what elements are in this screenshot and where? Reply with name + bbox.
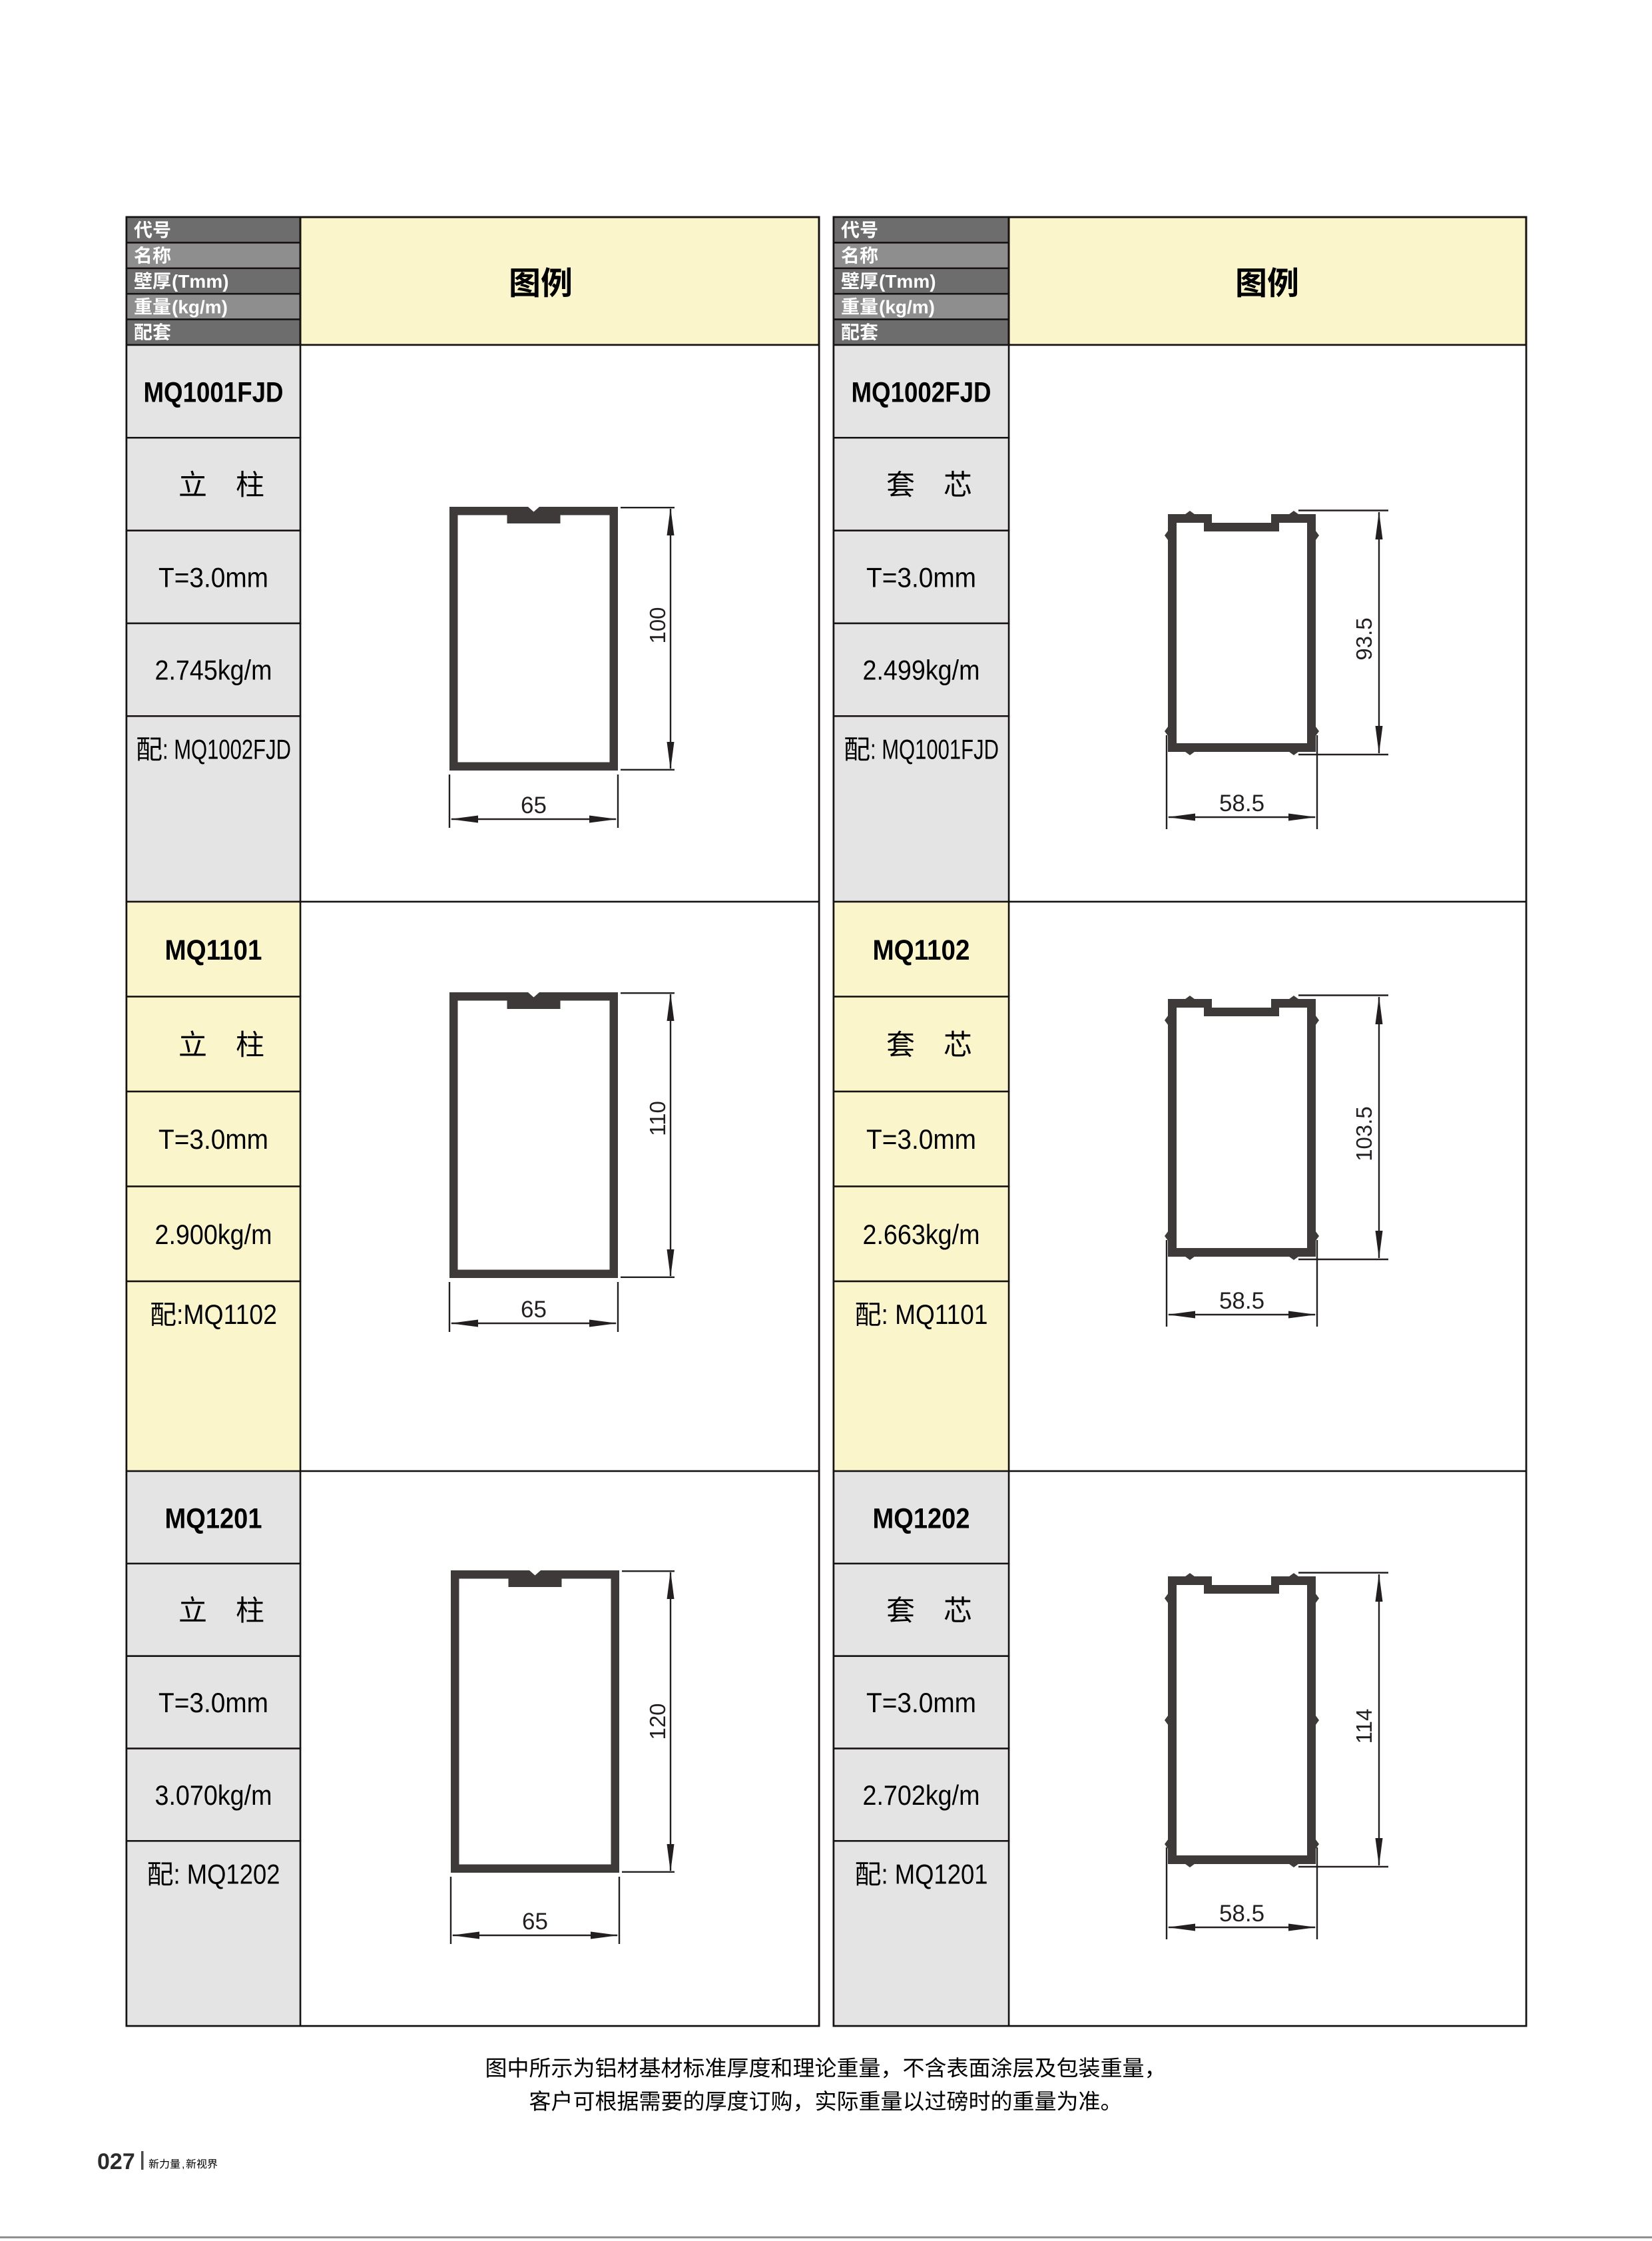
svg-text:120: 120 — [645, 1703, 670, 1740]
svg-text:: MQ1002FJD: : MQ1002FJD — [162, 733, 291, 765]
svg-text:T=3.0mm: T=3.0mm — [158, 561, 268, 593]
svg-text:58.5: 58.5 — [1219, 791, 1264, 816]
svg-text:(Tmm): (Tmm) — [172, 271, 229, 292]
svg-text:MQ1001FJD: MQ1001FJD — [144, 377, 284, 409]
svg-text:(kg/m): (kg/m) — [879, 296, 935, 317]
svg-text:65: 65 — [521, 793, 547, 818]
svg-text:T=3.0mm: T=3.0mm — [866, 561, 976, 593]
svg-text:,: , — [182, 2159, 184, 2170]
svg-text:2.663kg/m: 2.663kg/m — [863, 1219, 980, 1250]
svg-text:: MQ1201: : MQ1201 — [882, 1858, 988, 1889]
svg-text:65: 65 — [521, 1297, 547, 1323]
svg-text:65: 65 — [522, 1909, 548, 1935]
svg-text:110: 110 — [645, 1101, 670, 1136]
svg-text:: MQ1202: : MQ1202 — [174, 1858, 280, 1889]
svg-text:2.745kg/m: 2.745kg/m — [155, 655, 272, 686]
svg-text:100: 100 — [645, 607, 670, 643]
svg-text:2.900kg/m: 2.900kg/m — [155, 1219, 272, 1250]
svg-text:103.5: 103.5 — [1352, 1106, 1376, 1161]
svg-text:T=3.0mm: T=3.0mm — [158, 1123, 268, 1155]
svg-text::MQ1102: :MQ1102 — [176, 1299, 277, 1330]
svg-text:MQ1201: MQ1201 — [165, 1502, 262, 1534]
svg-text:MQ1102: MQ1102 — [873, 934, 970, 966]
svg-text:MQ1101: MQ1101 — [165, 934, 262, 966]
svg-text:(kg/m): (kg/m) — [172, 296, 228, 317]
svg-text:MQ1202: MQ1202 — [873, 1502, 970, 1534]
svg-text:2.499kg/m: 2.499kg/m — [863, 655, 980, 686]
svg-text:3.070kg/m: 3.070kg/m — [155, 1779, 272, 1811]
svg-text:MQ1002FJD: MQ1002FJD — [852, 377, 991, 409]
svg-text:114: 114 — [1352, 1709, 1376, 1744]
svg-text:2.702kg/m: 2.702kg/m — [863, 1779, 980, 1811]
svg-text:58.5: 58.5 — [1219, 1288, 1264, 1314]
svg-text:93.5: 93.5 — [1352, 617, 1376, 660]
svg-text:T=3.0mm: T=3.0mm — [866, 1687, 976, 1718]
svg-text:: MQ1101: : MQ1101 — [882, 1299, 988, 1330]
svg-text:T=3.0mm: T=3.0mm — [866, 1123, 976, 1155]
svg-text:027: 027 — [97, 2149, 135, 2174]
svg-text:T=3.0mm: T=3.0mm — [158, 1687, 268, 1718]
svg-text:(Tmm): (Tmm) — [879, 271, 936, 292]
svg-text:58.5: 58.5 — [1219, 1901, 1264, 1927]
svg-text:: MQ1001FJD: : MQ1001FJD — [870, 733, 999, 765]
